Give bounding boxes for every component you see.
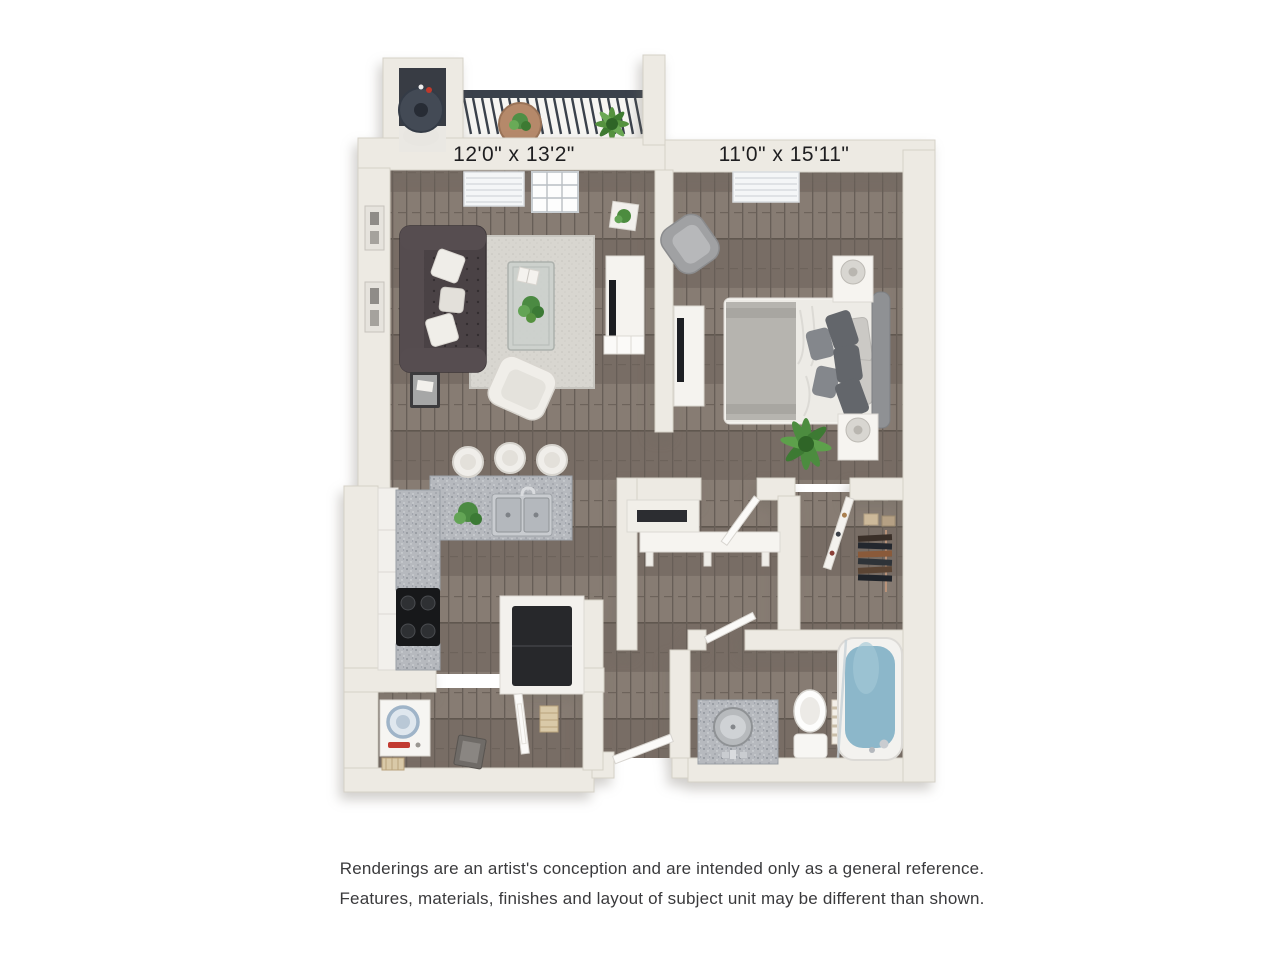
- vanity: [698, 700, 778, 764]
- faucet-handle: [740, 752, 747, 758]
- washer: [380, 700, 430, 756]
- bedroom-tv: [677, 318, 684, 382]
- hamper: [454, 735, 487, 769]
- throw-pillow: [439, 287, 465, 313]
- balcony-railing: [460, 90, 658, 98]
- kitchen-cabinets: [378, 488, 398, 670]
- television: [609, 280, 616, 338]
- left-wall-lower: [344, 486, 378, 792]
- planter-box: [609, 201, 638, 230]
- headboard: [872, 292, 890, 428]
- bathtub: [838, 638, 902, 760]
- kitchen-counter-left: [396, 490, 440, 590]
- bed: [724, 292, 890, 428]
- laundry-bottom-wall: [344, 768, 594, 792]
- kitchen-sink: [492, 488, 552, 536]
- linen-closet: [627, 500, 699, 532]
- side-table: [410, 372, 440, 408]
- nightstand-top: [833, 256, 873, 302]
- toilet: [794, 690, 827, 758]
- closet-left-wall: [778, 496, 800, 644]
- bar-stools: [453, 443, 567, 477]
- right-wall: [903, 150, 935, 782]
- bedroom-window: [733, 172, 799, 202]
- balcony-plant: [595, 107, 629, 141]
- balcony: [460, 90, 658, 145]
- stove: [396, 588, 440, 646]
- living-room-dimensions-label: 12'0" x 13'2": [453, 143, 575, 166]
- vanity-faucet: [730, 750, 736, 759]
- bed-pillow: [833, 344, 864, 383]
- laundry-top-wall-a: [344, 668, 436, 692]
- floor-plan-rendering: 12'0" x 13'2" 11'0" x 15'11": [0, 0, 1280, 960]
- living-room-window: [464, 172, 524, 206]
- bed-blanket: [726, 302, 796, 420]
- tv-stand: [604, 256, 644, 354]
- disclaimer: Renderings are an artist's conception an…: [22, 854, 1280, 914]
- wicker-basket: [540, 706, 558, 732]
- water-heater: [399, 85, 443, 147]
- tub-faucet: [880, 740, 889, 749]
- utility-closet: [399, 68, 446, 152]
- bedroom-media-console: [674, 306, 704, 406]
- kitchen-counter-lower: [396, 644, 440, 670]
- coffee-table: [508, 262, 554, 350]
- balcony-french-door: [532, 172, 578, 212]
- disclaimer-line-1: Renderings are an artist's conception an…: [22, 854, 1280, 884]
- refrigerator: [500, 596, 584, 694]
- nightstand-bottom: [838, 414, 878, 460]
- sofa: [400, 226, 486, 372]
- laundry-basket: [382, 758, 404, 770]
- mid-wall-c: [850, 478, 903, 500]
- bedroom-dimensions-label: 11'0" x 15'11": [719, 143, 850, 166]
- bathroom-top-wall-stub: [688, 630, 706, 650]
- washer-controls: [388, 742, 410, 748]
- disclaimer-line-2: Features, materials, finishes and layout…: [22, 884, 1280, 914]
- living-bedroom-wall: [655, 170, 673, 432]
- top-pillar: [643, 55, 665, 145]
- floor-plan-page: 12'0" x 13'2" 11'0" x 15'11" Renderings …: [0, 0, 1280, 960]
- faucet-handle: [722, 752, 729, 758]
